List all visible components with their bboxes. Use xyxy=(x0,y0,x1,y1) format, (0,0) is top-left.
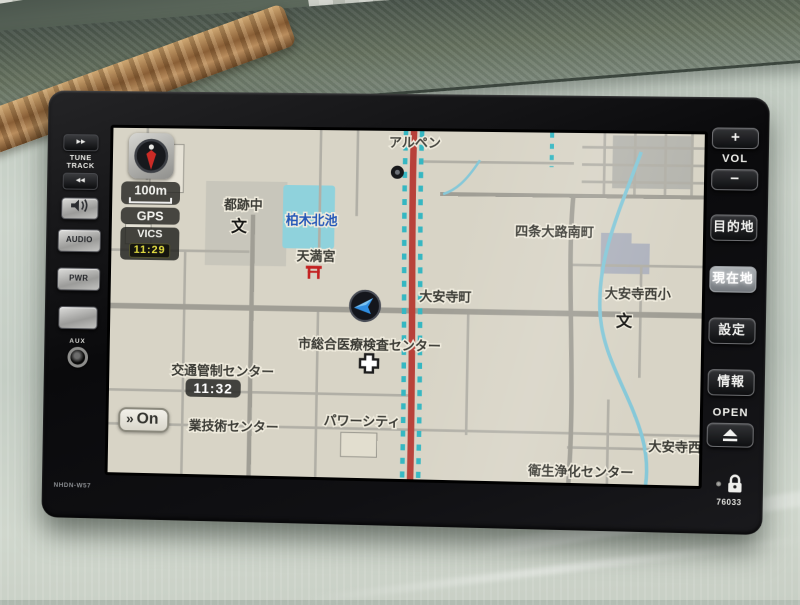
info-button[interactable]: 情報 xyxy=(707,369,754,396)
scale-badge[interactable]: 100m xyxy=(121,181,180,205)
congestion-on-label: On xyxy=(137,410,159,427)
unlabeled-button[interactable] xyxy=(58,306,97,329)
left-button-column: ▶▶ TUNE TRACK ◀◀ AUDIO PWR AUX xyxy=(54,134,105,368)
map-label-eisei-joka-center: 衛生浄化センター xyxy=(527,463,634,481)
eject-button[interactable] xyxy=(706,422,753,447)
security-led xyxy=(716,481,721,486)
map-label-tenmangu: 天満宮 xyxy=(296,248,335,264)
nav-touchscreen[interactable]: アルペン都跡中文柏木北池四条大路南町天満宮大安寺町大安寺西小文市総合医療検査セン… xyxy=(105,125,708,489)
track-up-button[interactable]: ▶▶ xyxy=(63,134,98,151)
power-button[interactable]: PWR xyxy=(57,267,100,290)
audio-button[interactable]: AUDIO xyxy=(58,229,101,252)
chevrons-icon: » xyxy=(126,410,134,426)
track-down-button[interactable]: ◀◀ xyxy=(63,173,98,190)
scale-label: 100m xyxy=(134,182,167,197)
map-label-school-symbol-1: 文 xyxy=(231,216,248,235)
destination-button[interactable]: 目的地 xyxy=(710,214,757,241)
track-down-icon: ◀◀ xyxy=(76,178,85,184)
lock-icon xyxy=(726,473,744,494)
map-label-alpen: アルペン xyxy=(389,135,441,151)
eject-icon xyxy=(721,428,740,443)
nav-head-unit: ▶▶ TUNE TRACK ◀◀ AUDIO PWR AUX NHDN-W57 xyxy=(41,90,770,535)
serial-label: 76033 xyxy=(716,498,741,508)
nav-map[interactable]: アルペン都跡中文柏木北池四条大路南町天満宮大安寺町大安寺西小文市総合医療検査セン… xyxy=(108,128,705,486)
tune-track-label: TUNE TRACK xyxy=(66,154,94,170)
map-label-daianji-cho: 大安寺町 xyxy=(419,289,471,305)
compass-icon xyxy=(132,137,170,175)
vics-time: 11:29 xyxy=(129,243,171,259)
map-label-power-city: パワーシティ xyxy=(324,413,401,430)
map-label-daianji-nishi-elementary: 大安寺西小 xyxy=(605,286,671,302)
speaker-icon xyxy=(69,198,91,212)
status-stack: 100m GPS VICS 11:29 xyxy=(119,133,182,261)
scale-bracket xyxy=(129,197,172,204)
volume-up-button[interactable]: + xyxy=(712,127,759,149)
map-label-miyakoato-junior-high: 都跡中 xyxy=(223,197,263,213)
map-label-daianji-nishi: 大安寺西 xyxy=(648,439,701,455)
clock-badge: 11:32 xyxy=(185,379,241,398)
map-label-medical-center: 市総合医療検査センター xyxy=(298,336,441,354)
map-label-industrial-tech-center: 業技術センター xyxy=(188,418,279,435)
aux-label: AUX xyxy=(69,338,85,345)
building-outline xyxy=(340,432,376,457)
vics-badge: VICS 11:29 xyxy=(120,227,179,261)
model-label: NHDN-W57 xyxy=(54,482,91,490)
gps-badge: GPS xyxy=(121,207,180,225)
current-position-button[interactable]: 現在地 xyxy=(709,266,756,293)
congestion-on-button[interactable]: »On xyxy=(118,407,169,433)
vics-label: VICS xyxy=(120,228,179,241)
aux-jack xyxy=(67,347,88,368)
compass-widget[interactable] xyxy=(128,133,174,179)
current-position-icon xyxy=(350,291,381,322)
voice-button[interactable] xyxy=(61,197,98,219)
map-label-school-symbol-2: 文 xyxy=(616,311,634,331)
right-button-column: + VOL − 目的地 現在地 設定 情報 OPEN 76033 xyxy=(703,127,761,507)
map-label-kashiwagi-kitaike: 柏木北池 xyxy=(286,212,338,228)
volume-down-button[interactable]: − xyxy=(711,169,758,191)
track-up-icon: ▶▶ xyxy=(76,139,85,145)
settings-button[interactable]: 設定 xyxy=(708,317,755,344)
volume-label: VOL xyxy=(722,153,748,165)
open-label: OPEN xyxy=(713,406,749,419)
map-label-shijo-oji-minamimachi: 四条大路南町 xyxy=(515,223,594,239)
map-label-traffic-control-center: 交通管制センター xyxy=(171,363,274,380)
